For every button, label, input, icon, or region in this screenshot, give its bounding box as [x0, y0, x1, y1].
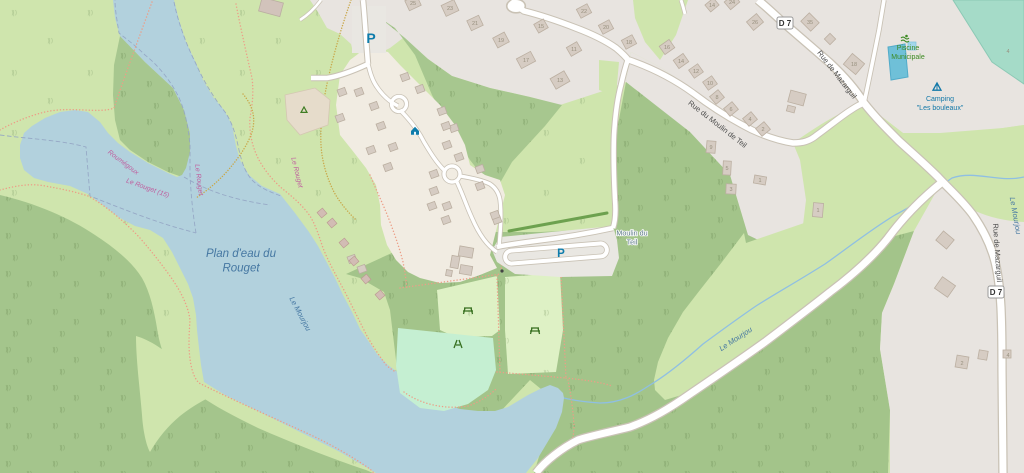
svg-text:4: 4	[1006, 49, 1009, 55]
svg-text:17: 17	[523, 58, 529, 64]
svg-text:16: 16	[664, 45, 670, 51]
svg-text:9: 9	[709, 145, 712, 151]
svg-text:14: 14	[709, 3, 715, 9]
svg-text:11: 11	[571, 47, 577, 53]
svg-text:8: 8	[715, 95, 718, 101]
svg-text:26: 26	[752, 20, 758, 26]
svg-text:10: 10	[707, 81, 713, 87]
svg-text:Piscine: Piscine	[897, 45, 920, 52]
svg-text:15: 15	[538, 24, 544, 30]
svg-text:35: 35	[807, 20, 813, 26]
svg-text:Rouget: Rouget	[222, 263, 260, 275]
svg-text:4: 4	[1006, 353, 1009, 359]
svg-text:Teil: Teil	[627, 238, 638, 247]
svg-text:"Les bouleaux": "Les bouleaux"	[917, 105, 964, 112]
svg-text:D 7: D 7	[779, 19, 792, 28]
svg-text:Municipale: Municipale	[891, 54, 925, 61]
svg-text:4: 4	[748, 117, 751, 123]
svg-text:18: 18	[851, 62, 857, 68]
svg-text:2: 2	[761, 127, 764, 133]
svg-text:D 7: D 7	[990, 288, 1003, 297]
svg-text:1: 1	[758, 178, 761, 184]
svg-text:22: 22	[581, 9, 587, 15]
svg-text:Plan d'eau du: Plan d'eau du	[206, 248, 277, 260]
svg-text:Camping: Camping	[926, 96, 954, 103]
svg-text:12: 12	[693, 69, 699, 75]
svg-text:P: P	[557, 248, 565, 260]
svg-text:19: 19	[498, 38, 504, 44]
svg-text:18: 18	[626, 40, 632, 46]
svg-text:Moulin du: Moulin du	[616, 229, 647, 238]
svg-text:1: 1	[816, 208, 819, 214]
svg-text:20: 20	[603, 25, 609, 31]
svg-text:5: 5	[725, 166, 728, 172]
svg-text:23: 23	[447, 6, 453, 12]
svg-text:6: 6	[729, 107, 732, 113]
svg-text:14: 14	[678, 59, 684, 65]
svg-text:25: 25	[410, 1, 416, 7]
svg-text:13: 13	[557, 78, 563, 84]
svg-text:2: 2	[960, 361, 963, 367]
svg-text:3: 3	[729, 187, 732, 193]
svg-text:24: 24	[729, 0, 735, 6]
svg-text:P: P	[366, 30, 375, 46]
svg-text:21: 21	[472, 21, 478, 27]
